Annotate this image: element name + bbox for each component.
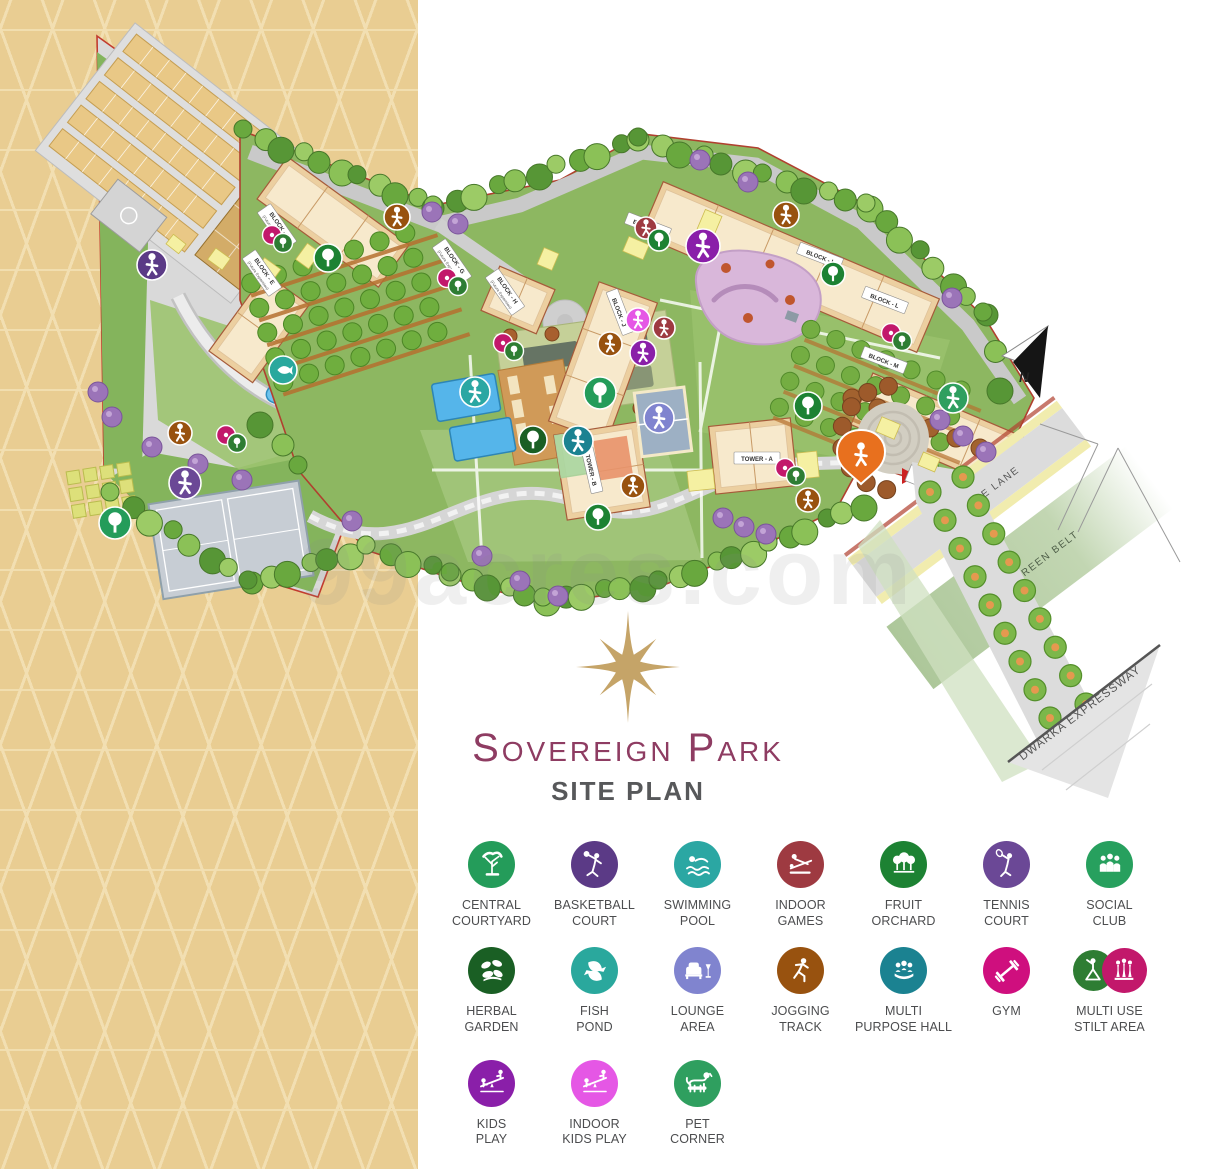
legend-item-lounge-area: LOUNGE AREA xyxy=(646,947,749,1035)
map-marker-fruit-orchard xyxy=(648,229,670,251)
stilt-area-pillars-icon xyxy=(1102,948,1147,993)
legend-label: LOUNGE AREA xyxy=(671,1004,724,1035)
herbal-garden-icon xyxy=(468,947,515,994)
legend-item-multi-purpose-hall: MULTI PURPOSE HALL xyxy=(852,947,955,1035)
legend-row-1: CENTRAL COURTYARD BASKETBALL COURT xyxy=(440,841,1180,929)
indoor-kids-play-icon xyxy=(571,1060,618,1107)
legend-label: SOCIAL CLUB xyxy=(1086,898,1132,929)
legend-item-kids-play: KIDS PLAY xyxy=(440,1060,543,1148)
map-marker-fruit-orchard xyxy=(821,262,845,286)
legend-item-gym: GYM xyxy=(955,947,1058,1035)
map-marker-central-courtyard xyxy=(99,507,131,539)
multi-purpose-hall-icon xyxy=(880,947,927,994)
legend-label: PET CORNER xyxy=(670,1117,725,1148)
legend-item-swimming-pool: SWIMMING POOL xyxy=(646,841,749,929)
legend-item-central-courtyard: CENTRAL COURTYARD xyxy=(440,841,543,929)
legend-label: HERBAL GARDEN xyxy=(464,1004,518,1035)
legend-item-tennis-court: TENNIS COURT xyxy=(955,841,1058,929)
legend: CENTRAL COURTYARD BASKETBALL COURT xyxy=(440,841,1180,1148)
central-courtyard-icon xyxy=(468,841,515,888)
map-marker-multi-purpose-hall xyxy=(563,426,593,456)
map-marker-indoor-kids-play xyxy=(626,308,650,332)
fish-pond-icon xyxy=(571,947,618,994)
lounge-area-icon xyxy=(674,947,721,994)
legend-label: MULTI USE STILT AREA xyxy=(1074,1004,1145,1035)
project-title: Sovereign Park xyxy=(418,728,838,768)
site-plan-poster: SERVICE LANE GREEN BELT DWARKA EXPRESSWA… xyxy=(0,0,1221,1169)
legend-item-fruit-orchard: FRUIT ORCHARD xyxy=(852,841,955,929)
legend-label: CENTRAL COURTYARD xyxy=(452,898,531,929)
map-marker-central-courtyard xyxy=(584,377,616,409)
branding: Sovereign Park SITE PLAN xyxy=(418,608,838,804)
map-marker-herbal-garden xyxy=(519,426,547,454)
map-marker-jogging-track xyxy=(168,421,192,445)
map-marker-jogging-track xyxy=(773,202,799,228)
map-marker-kids-play xyxy=(630,340,656,366)
block-label-chip: TOWER - A xyxy=(734,452,780,464)
legend-label: TENNIS COURT xyxy=(983,898,1029,929)
map-marker-jogging-track xyxy=(598,332,622,356)
map-marker-fruit-orchard xyxy=(794,392,822,420)
legend-item-indoor-kids-play: INDOOR KIDS PLAY xyxy=(543,1060,646,1148)
gym-icon xyxy=(983,947,1030,994)
map-marker-fruit-orchard xyxy=(314,244,342,272)
map-marker-swimming-pool xyxy=(460,377,490,407)
legend-label: INDOOR GAMES xyxy=(775,898,826,929)
tennis-court-icon xyxy=(983,841,1030,888)
swimming-pool-icon xyxy=(674,841,721,888)
legend-row-3: KIDS PLAY INDOOR KIDS PLAY xyxy=(440,1060,1180,1148)
legend-item-basketball-court: BASKETBALL COURT xyxy=(543,841,646,929)
legend-label: SWIMMING POOL xyxy=(664,898,731,929)
svg-text:TOWER - A: TOWER - A xyxy=(741,457,773,463)
indoor-games-icon xyxy=(777,841,824,888)
north-label: N xyxy=(1019,369,1030,385)
map-marker-jogging-track xyxy=(796,488,820,512)
jogging-track-icon xyxy=(777,947,824,994)
fruit-orchard-icon xyxy=(880,841,927,888)
social-club-icon xyxy=(1086,841,1133,888)
map-marker-kids-play xyxy=(686,229,720,263)
sovereign-park-logo-icon xyxy=(568,608,688,726)
legend-item-pet-corner: PET CORNER xyxy=(646,1060,749,1148)
map-marker-jogging-track xyxy=(384,204,410,230)
legend-item-multi-use-stilt-area: MULTI USE STILT AREA xyxy=(1058,947,1161,1035)
legend-label: FRUIT ORCHARD xyxy=(872,898,936,929)
map-marker-tennis-court xyxy=(169,467,201,499)
legend-item-fish-pond: FISH POND xyxy=(543,947,646,1035)
legend-label: INDOOR KIDS PLAY xyxy=(562,1117,627,1148)
legend-label: JOGGING TRACK xyxy=(771,1004,829,1035)
legend-item-jogging-track: JOGGING TRACK xyxy=(749,947,852,1035)
legend-label: BASKETBALL COURT xyxy=(554,898,635,929)
legend-label: GYM xyxy=(992,1004,1021,1020)
page-title: SITE PLAN xyxy=(418,778,838,804)
legend-label: FISH POND xyxy=(576,1004,613,1035)
map-marker-pet-corner xyxy=(938,383,968,413)
kids-play-icon xyxy=(468,1060,515,1107)
map-marker-fish-pond xyxy=(269,356,297,384)
legend-item-herbal-garden: HERBAL GARDEN xyxy=(440,947,543,1035)
legend-label: MULTI PURPOSE HALL xyxy=(855,1004,952,1035)
map-marker-indoor-games xyxy=(653,317,675,339)
legend-item-indoor-games: INDOOR GAMES xyxy=(749,841,852,929)
legend-item-social-club: SOCIAL CLUB xyxy=(1058,841,1161,929)
map-marker-jogging-track xyxy=(621,474,645,498)
pet-corner-icon xyxy=(674,1060,721,1107)
map-marker-lounge-area xyxy=(644,403,674,433)
legend-row-2: HERBAL GARDEN FISH POND xyxy=(440,947,1180,1035)
basketball-court-icon xyxy=(571,841,618,888)
legend-label: KIDS PLAY xyxy=(476,1117,507,1148)
map-marker-basketball-court xyxy=(137,250,167,280)
